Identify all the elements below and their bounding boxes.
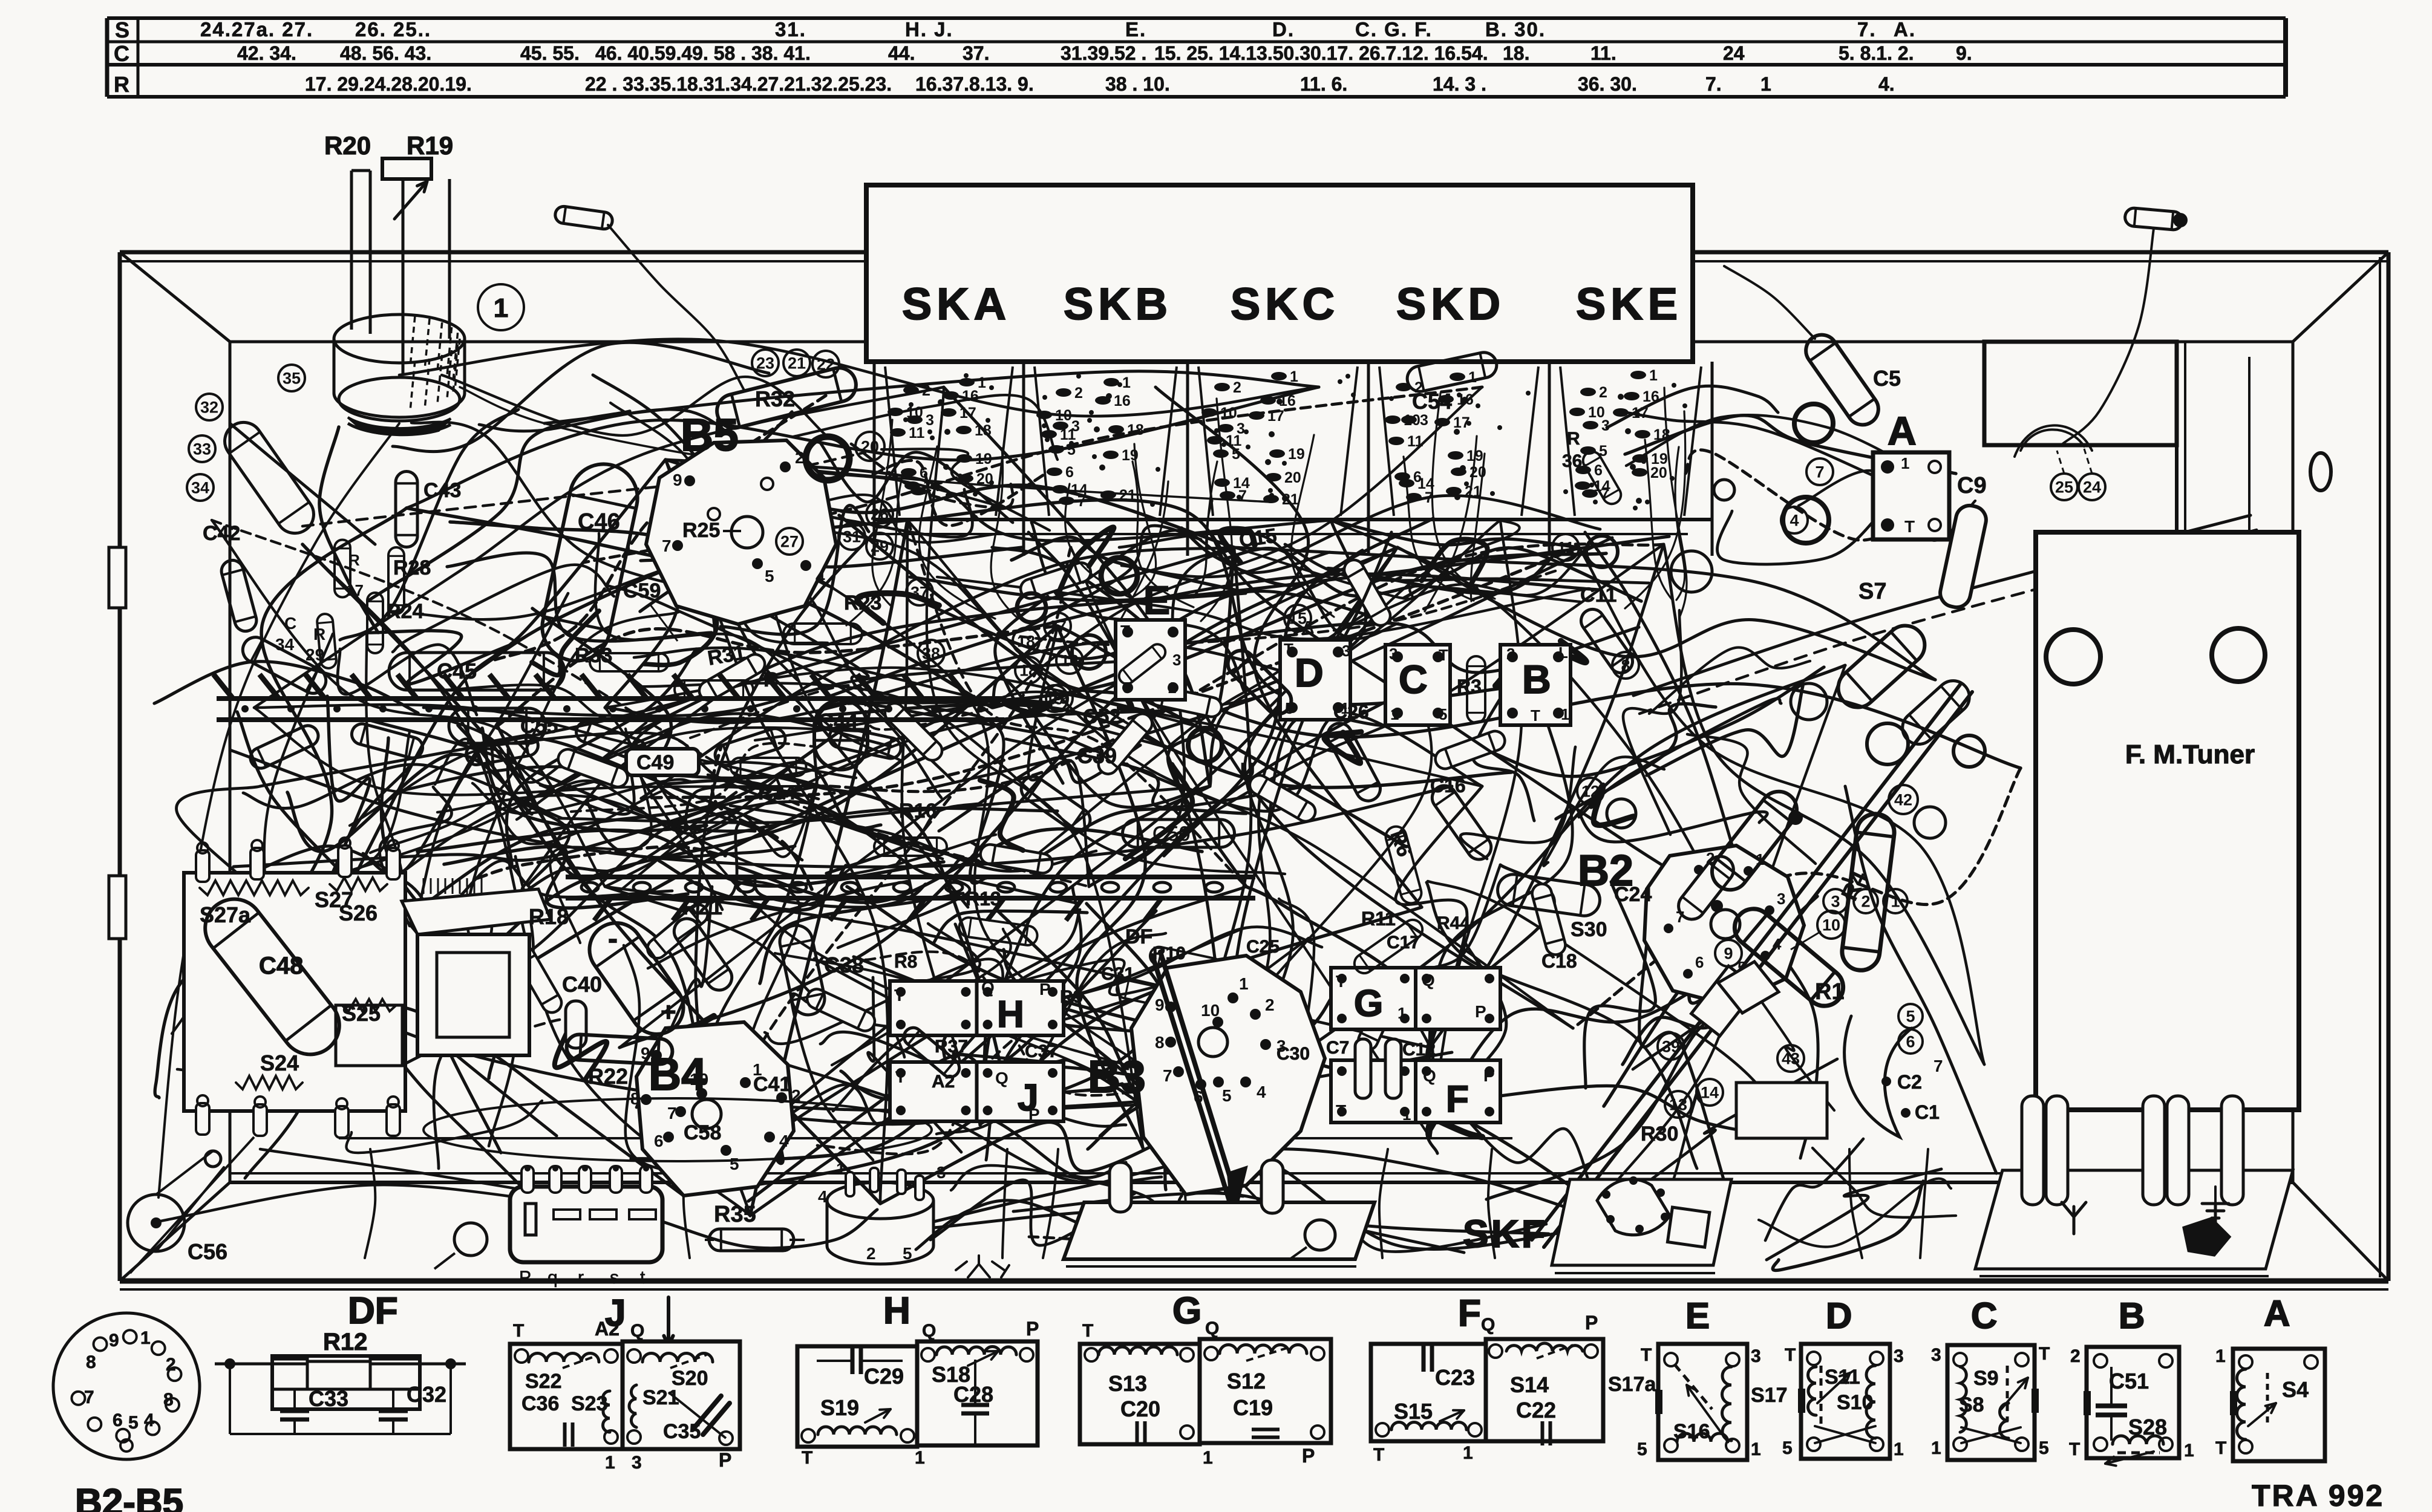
svg-text:6: 6 bbox=[1594, 462, 1603, 479]
svg-text:t: t bbox=[640, 1268, 646, 1288]
svg-text:44.: 44. bbox=[888, 42, 915, 64]
svg-text:B3: B3 bbox=[1088, 1051, 1146, 1102]
svg-text:C: C bbox=[114, 41, 129, 66]
svg-text:4: 4 bbox=[1790, 512, 1799, 530]
svg-text:DF: DF bbox=[348, 1290, 398, 1332]
svg-text:C1: C1 bbox=[1915, 1101, 1940, 1123]
svg-text:10: 10 bbox=[1822, 916, 1840, 934]
svg-text:C29: C29 bbox=[864, 1364, 904, 1389]
svg-text:R11: R11 bbox=[1361, 908, 1396, 930]
svg-text:2: 2 bbox=[1506, 645, 1515, 663]
svg-text:C41: C41 bbox=[753, 1073, 791, 1096]
svg-text:C48: C48 bbox=[259, 953, 303, 979]
svg-text:SKE: SKE bbox=[1576, 279, 1682, 329]
svg-text:18: 18 bbox=[1127, 422, 1144, 438]
svg-text:6: 6 bbox=[1065, 464, 1074, 481]
svg-text:C58: C58 bbox=[684, 1121, 721, 1144]
svg-text:17: 17 bbox=[346, 581, 364, 599]
svg-text:7: 7 bbox=[84, 1387, 94, 1407]
svg-text:10: 10 bbox=[1055, 407, 1072, 424]
svg-text:16: 16 bbox=[1643, 388, 1659, 405]
svg-text:R1: R1 bbox=[1815, 979, 1845, 1005]
svg-text:1: 1 bbox=[1290, 368, 1298, 385]
svg-text:2: 2 bbox=[2070, 1346, 2081, 1366]
svg-text:S15: S15 bbox=[1394, 1399, 1433, 1424]
svg-text:T: T bbox=[894, 986, 904, 1005]
svg-text:R12: R12 bbox=[323, 1329, 367, 1355]
svg-text:T: T bbox=[895, 1067, 906, 1086]
svg-text:T: T bbox=[1531, 706, 1540, 725]
svg-text:38: 38 bbox=[922, 645, 940, 663]
svg-text:C49: C49 bbox=[636, 751, 674, 774]
svg-text:SKA: SKA bbox=[902, 279, 1011, 329]
svg-text:2: 2 bbox=[922, 382, 930, 399]
svg-text:22 . 33.35.18.31.34.27.21.32.2: 22 . 33.35.18.31.34.27.21.32.25.23. bbox=[585, 73, 892, 95]
svg-text:C30: C30 bbox=[1276, 1044, 1310, 1064]
svg-text:C26: C26 bbox=[1333, 701, 1369, 723]
svg-text:43: 43 bbox=[1782, 1050, 1800, 1068]
svg-text:P: P bbox=[1585, 1312, 1598, 1334]
svg-text:C2: C2 bbox=[1897, 1071, 1922, 1093]
svg-text:C36: C36 bbox=[521, 1392, 559, 1415]
svg-text:6: 6 bbox=[1695, 953, 1704, 971]
svg-text:35: 35 bbox=[283, 370, 301, 388]
svg-text:11: 11 bbox=[1557, 539, 1575, 557]
svg-text:7: 7 bbox=[1934, 1057, 1943, 1075]
svg-text:S14: S14 bbox=[1510, 1372, 1549, 1397]
svg-text:D: D bbox=[1826, 1295, 1852, 1336]
svg-text:27: 27 bbox=[780, 533, 799, 551]
svg-text:C20: C20 bbox=[1120, 1396, 1160, 1421]
svg-text:1: 1 bbox=[836, 1159, 846, 1178]
svg-text:1: 1 bbox=[140, 1328, 151, 1348]
svg-text:T: T bbox=[1082, 1321, 1093, 1341]
svg-text:3: 3 bbox=[1420, 412, 1428, 429]
svg-text:6: 6 bbox=[1906, 1033, 1915, 1051]
svg-text:19: 19 bbox=[1045, 690, 1064, 708]
svg-text:C40: C40 bbox=[562, 972, 602, 997]
svg-text:45. 55.: 45. 55. bbox=[520, 42, 580, 64]
svg-text:5: 5 bbox=[1637, 1439, 1647, 1459]
svg-text:3: 3 bbox=[1894, 1346, 1904, 1366]
svg-text:1: 1 bbox=[1463, 1443, 1473, 1463]
svg-text:24: 24 bbox=[1723, 42, 1745, 64]
svg-text:H. J.: H. J. bbox=[905, 18, 953, 41]
svg-text:R44: R44 bbox=[1437, 913, 1470, 933]
svg-text:R: R bbox=[1567, 429, 1580, 449]
svg-text:3: 3 bbox=[1071, 418, 1080, 435]
svg-text:C23: C23 bbox=[1435, 1365, 1475, 1390]
svg-text:C25: C25 bbox=[1246, 937, 1280, 957]
svg-text:R28: R28 bbox=[393, 556, 431, 579]
svg-text:1: 1 bbox=[1751, 1439, 1761, 1459]
svg-text:1: 1 bbox=[1931, 1438, 1941, 1458]
svg-text:3: 3 bbox=[1389, 645, 1397, 663]
svg-text:R: R bbox=[348, 551, 360, 569]
svg-text:T: T bbox=[1641, 1345, 1652, 1365]
svg-text:5. 8.1. 2.: 5. 8.1. 2. bbox=[1839, 42, 1914, 64]
svg-text:14: 14 bbox=[1701, 1084, 1719, 1102]
svg-text:15. 25. 14.13.50.30.17. 26.7.1: 15. 25. 14.13.50.30.17. 26.7.12. 16.54. bbox=[1154, 42, 1488, 64]
svg-text:C11: C11 bbox=[1580, 584, 1617, 607]
svg-text:E.: E. bbox=[1125, 18, 1146, 41]
svg-text:5: 5 bbox=[1439, 705, 1447, 723]
svg-text:5: 5 bbox=[1782, 1438, 1793, 1458]
svg-text:9: 9 bbox=[1155, 996, 1165, 1014]
svg-text:2: 2 bbox=[1599, 384, 1607, 401]
svg-text:7: 7 bbox=[1815, 463, 1824, 481]
svg-text:1: 1 bbox=[2184, 1441, 2194, 1461]
svg-text:16.37.8.13. 9.: 16.37.8.13. 9. bbox=[915, 73, 1034, 95]
svg-text:2: 2 bbox=[166, 1355, 176, 1375]
svg-text:C: C bbox=[1971, 1295, 1997, 1336]
svg-text:11. 6.: 11. 6. bbox=[1300, 73, 1347, 95]
svg-text:1: 1 bbox=[1122, 374, 1131, 391]
svg-text:R20: R20 bbox=[324, 131, 371, 160]
svg-text:R16: R16 bbox=[899, 800, 937, 823]
svg-text:R34: R34 bbox=[758, 781, 796, 804]
svg-text:3: 3 bbox=[1342, 642, 1350, 660]
svg-text:19: 19 bbox=[975, 451, 992, 468]
svg-text:22: 22 bbox=[817, 356, 835, 374]
svg-text:18: 18 bbox=[1019, 662, 1038, 680]
svg-text:11: 11 bbox=[1226, 432, 1242, 449]
svg-text:E: E bbox=[1143, 578, 1170, 622]
svg-text:F: F bbox=[1458, 1292, 1481, 1334]
svg-text:8: 8 bbox=[1155, 1033, 1165, 1052]
svg-text:1: 1 bbox=[605, 1453, 615, 1473]
svg-text:C: C bbox=[1399, 657, 1428, 702]
svg-text:17: 17 bbox=[959, 405, 976, 422]
svg-text:B2-B5: B2-B5 bbox=[75, 1482, 183, 1512]
svg-text:T: T bbox=[2069, 1439, 2080, 1459]
svg-text:R13: R13 bbox=[966, 888, 1001, 910]
svg-text:5: 5 bbox=[2039, 1438, 2049, 1458]
svg-text:8: 8 bbox=[86, 1352, 96, 1372]
svg-text:6: 6 bbox=[654, 1132, 664, 1150]
svg-text:R24: R24 bbox=[386, 600, 423, 623]
svg-text:Q: Q bbox=[1205, 1318, 1219, 1338]
svg-text:4: 4 bbox=[818, 1187, 828, 1206]
svg-text:16: 16 bbox=[1114, 393, 1131, 409]
svg-text:5: 5 bbox=[1222, 1086, 1232, 1105]
svg-text:G: G bbox=[1172, 1290, 1201, 1332]
svg-text:T: T bbox=[1120, 622, 1130, 640]
svg-text:P: P bbox=[719, 1449, 731, 1471]
svg-text:15: 15 bbox=[1289, 610, 1307, 628]
svg-text:Q: Q bbox=[995, 1069, 1008, 1087]
svg-text:C19: C19 bbox=[1233, 1395, 1273, 1420]
svg-text:6: 6 bbox=[113, 1410, 123, 1430]
svg-text:C39: C39 bbox=[1077, 743, 1117, 768]
svg-text:C24: C24 bbox=[1614, 883, 1652, 906]
svg-text:G: G bbox=[1354, 983, 1383, 1025]
svg-text:17: 17 bbox=[1267, 408, 1284, 425]
svg-text:S22: S22 bbox=[525, 1370, 562, 1393]
svg-text:r: r bbox=[578, 1268, 584, 1288]
svg-text:23: 23 bbox=[756, 354, 774, 373]
svg-text:10: 10 bbox=[690, 1070, 708, 1089]
svg-text:C17: C17 bbox=[1387, 933, 1420, 953]
svg-text:11.: 11. bbox=[1590, 42, 1616, 64]
svg-text:18: 18 bbox=[975, 422, 992, 439]
svg-text:42. 34.: 42. 34. bbox=[237, 42, 296, 64]
svg-text:9: 9 bbox=[109, 1331, 119, 1351]
svg-text:3: 3 bbox=[1751, 1346, 1761, 1366]
svg-text:C45: C45 bbox=[437, 659, 477, 683]
svg-text:9: 9 bbox=[1724, 945, 1733, 963]
svg-text:33: 33 bbox=[193, 440, 211, 458]
svg-text:31: 31 bbox=[843, 528, 861, 546]
svg-text:T: T bbox=[802, 1448, 812, 1468]
svg-text:31.39.52 .: 31.39.52 . bbox=[1061, 42, 1146, 64]
svg-text:R32: R32 bbox=[755, 386, 795, 411]
svg-text:20: 20 bbox=[1284, 469, 1301, 486]
svg-text:5: 5 bbox=[1906, 1008, 1915, 1026]
svg-text:1: 1 bbox=[1894, 1439, 1904, 1459]
svg-text:H: H bbox=[997, 994, 1024, 1035]
svg-text:37.: 37. bbox=[963, 42, 989, 64]
svg-text:34: 34 bbox=[191, 479, 209, 497]
svg-text:C52: C52 bbox=[1083, 705, 1120, 728]
svg-text:3: 3 bbox=[937, 1163, 946, 1182]
svg-text:S9: S9 bbox=[1973, 1367, 1999, 1390]
svg-text:42: 42 bbox=[1894, 791, 1912, 809]
svg-text:C51: C51 bbox=[2109, 1369, 2149, 1393]
svg-text:3: 3 bbox=[632, 1453, 642, 1473]
svg-text:1: 1 bbox=[1203, 1448, 1213, 1468]
svg-text:R30: R30 bbox=[1641, 1123, 1678, 1145]
svg-text:A: A bbox=[1888, 408, 1917, 453]
svg-text:S17a: S17a bbox=[1608, 1373, 1656, 1396]
svg-text:7: 7 bbox=[1163, 1066, 1172, 1085]
svg-text:q: q bbox=[548, 1268, 558, 1288]
svg-text:14. 3 .: 14. 3 . bbox=[1433, 73, 1486, 95]
svg-text:R18: R18 bbox=[529, 904, 569, 929]
svg-text:C54: C54 bbox=[1412, 389, 1452, 414]
svg-text:SKC: SKC bbox=[1231, 279, 1339, 329]
svg-text:C12: C12 bbox=[1402, 1040, 1436, 1060]
svg-text:P: P bbox=[519, 1268, 531, 1288]
svg-text:C42: C42 bbox=[203, 522, 240, 545]
svg-text:D: D bbox=[1295, 650, 1324, 695]
svg-text:C44: C44 bbox=[818, 709, 858, 734]
svg-text:C59: C59 bbox=[623, 579, 661, 602]
svg-text:B. 30.: B. 30. bbox=[1485, 18, 1546, 41]
svg-text:5: 5 bbox=[730, 1155, 739, 1173]
svg-text:26: 26 bbox=[871, 506, 889, 524]
svg-text:5: 5 bbox=[765, 567, 774, 585]
svg-text:5: 5 bbox=[1123, 679, 1131, 697]
svg-text:1: 1 bbox=[1239, 974, 1249, 993]
svg-text:S19: S19 bbox=[820, 1395, 859, 1420]
svg-text:11: 11 bbox=[1407, 433, 1424, 450]
svg-text:H: H bbox=[883, 1290, 910, 1332]
svg-text:S17: S17 bbox=[1751, 1384, 1788, 1407]
svg-text:Q: Q bbox=[1481, 1315, 1495, 1335]
svg-text:1: 1 bbox=[1760, 73, 1771, 95]
svg-text:3: 3 bbox=[1172, 651, 1181, 669]
svg-text:4: 4 bbox=[1257, 1083, 1266, 1101]
svg-text:C43: C43 bbox=[423, 479, 461, 502]
svg-text:C9: C9 bbox=[1957, 473, 1987, 498]
svg-text:1: 1 bbox=[1468, 369, 1477, 386]
svg-text:16: 16 bbox=[962, 388, 979, 405]
svg-text:C56: C56 bbox=[188, 1239, 227, 1264]
svg-text:P: P bbox=[1475, 1002, 1486, 1021]
svg-text:U: U bbox=[1240, 759, 1255, 782]
svg-text:36. 30.: 36. 30. bbox=[1578, 73, 1637, 95]
svg-text:2: 2 bbox=[866, 1244, 876, 1263]
svg-text:T: T bbox=[1373, 1445, 1384, 1465]
svg-text:S20: S20 bbox=[672, 1367, 708, 1390]
svg-text:C38: C38 bbox=[824, 953, 864, 977]
svg-text:DF: DF bbox=[1125, 925, 1152, 948]
svg-text:SKD: SKD bbox=[1396, 279, 1505, 329]
svg-text:10: 10 bbox=[1588, 404, 1605, 421]
svg-text:C37: C37 bbox=[1025, 1041, 1058, 1061]
svg-text:+: + bbox=[661, 997, 676, 1027]
svg-text:R25: R25 bbox=[682, 519, 720, 542]
svg-text:3: 3 bbox=[1831, 893, 1840, 911]
svg-text:S26: S26 bbox=[339, 901, 378, 925]
svg-text:P: P bbox=[1039, 980, 1051, 999]
svg-text:P: P bbox=[1026, 1318, 1039, 1340]
svg-text:B5: B5 bbox=[681, 409, 739, 460]
svg-text:7.: 7. bbox=[1705, 73, 1722, 95]
svg-text:C18: C18 bbox=[1541, 950, 1577, 972]
svg-text:S25: S25 bbox=[342, 1001, 381, 1026]
svg-text:25: 25 bbox=[2055, 478, 2073, 497]
svg-text:4.: 4. bbox=[1878, 73, 1895, 95]
svg-text:C: C bbox=[284, 614, 296, 633]
svg-text:7.: 7. bbox=[1857, 18, 1877, 41]
svg-text:T: T bbox=[1439, 646, 1448, 664]
svg-text:18.: 18. bbox=[1503, 42, 1529, 64]
svg-text:S30: S30 bbox=[1571, 918, 1607, 941]
svg-text:3: 3 bbox=[1931, 1345, 1941, 1365]
svg-text:2: 2 bbox=[1074, 385, 1083, 402]
svg-text:1: 1 bbox=[1397, 1004, 1406, 1022]
svg-text:P: P bbox=[1302, 1445, 1315, 1467]
svg-text:R9: R9 bbox=[1060, 987, 1083, 1007]
svg-text:17: 17 bbox=[1048, 618, 1067, 636]
svg-text:1: 1 bbox=[1561, 705, 1569, 723]
svg-text:29: 29 bbox=[871, 538, 889, 556]
svg-text:A.: A. bbox=[1894, 18, 1916, 41]
svg-text:10: 10 bbox=[1220, 405, 1237, 422]
svg-text:R35: R35 bbox=[714, 1202, 756, 1227]
svg-text:21: 21 bbox=[788, 354, 806, 373]
svg-text:C22: C22 bbox=[1516, 1398, 1556, 1422]
svg-text:7: 7 bbox=[662, 536, 672, 555]
svg-text:1: 1 bbox=[2215, 1346, 2226, 1366]
svg-text:R3: R3 bbox=[1457, 676, 1482, 697]
svg-text:A2: A2 bbox=[595, 1318, 619, 1340]
svg-text:C5: C5 bbox=[1873, 366, 1901, 391]
svg-text:24.27a. 27.: 24.27a. 27. bbox=[200, 18, 313, 41]
svg-text:1: 1 bbox=[1168, 679, 1176, 697]
svg-text:C7: C7 bbox=[1326, 1038, 1349, 1058]
svg-text:D.: D. bbox=[1272, 18, 1295, 41]
svg-text:C50: C50 bbox=[1152, 823, 1190, 846]
svg-text:3: 3 bbox=[1777, 890, 1785, 908]
svg-text:R19: R19 bbox=[407, 131, 453, 160]
svg-text:S4: S4 bbox=[2282, 1377, 2309, 1402]
svg-text:2: 2 bbox=[1265, 996, 1275, 1014]
svg-text:1: 1 bbox=[494, 293, 508, 323]
svg-text:9: 9 bbox=[641, 1044, 650, 1063]
svg-text:48. 56. 43.: 48. 56. 43. bbox=[340, 42, 431, 64]
svg-text:9.: 9. bbox=[1956, 42, 1972, 64]
svg-text:P: P bbox=[1483, 1066, 1495, 1085]
svg-text:S24: S24 bbox=[260, 1051, 299, 1075]
svg-text:Q: Q bbox=[981, 978, 995, 997]
svg-text:T: T bbox=[2039, 1344, 2050, 1364]
svg-text:46. 40.59.49. 58 . 38. 41.: 46. 40.59.49. 58 . 38. 41. bbox=[595, 42, 811, 64]
svg-text:R23: R23 bbox=[844, 591, 881, 614]
svg-text:14: 14 bbox=[1233, 475, 1250, 492]
svg-text:11: 11 bbox=[909, 425, 925, 442]
svg-text:1: 1 bbox=[1901, 454, 1909, 472]
svg-text:s: s bbox=[610, 1268, 619, 1288]
svg-text:T: T bbox=[1336, 972, 1346, 991]
svg-text:1: 1 bbox=[1402, 1106, 1411, 1124]
svg-text:C. G. F.: C. G. F. bbox=[1355, 18, 1433, 41]
svg-text:5: 5 bbox=[128, 1413, 139, 1433]
svg-text:R22: R22 bbox=[588, 1064, 628, 1089]
svg-text:T: T bbox=[1284, 640, 1293, 658]
svg-text:1: 1 bbox=[1891, 893, 1900, 911]
svg-text:1: 1 bbox=[1649, 367, 1658, 384]
svg-text:17: 17 bbox=[1632, 405, 1649, 422]
svg-text:8: 8 bbox=[1621, 657, 1630, 675]
svg-text:S: S bbox=[115, 18, 129, 42]
svg-text:1: 1 bbox=[915, 1448, 925, 1468]
svg-text:A: A bbox=[2264, 1293, 2290, 1334]
svg-text:B: B bbox=[1522, 657, 1551, 702]
svg-text:4: 4 bbox=[144, 1410, 154, 1430]
svg-text:12: 12 bbox=[1581, 783, 1600, 801]
svg-text:37: 37 bbox=[910, 584, 929, 602]
svg-text:B: B bbox=[2119, 1295, 2145, 1336]
svg-text:19: 19 bbox=[1651, 451, 1668, 468]
svg-text:1: 1 bbox=[1390, 705, 1399, 723]
svg-text:4: 4 bbox=[816, 567, 825, 586]
svg-text:SKF: SKF bbox=[1463, 1212, 1548, 1256]
svg-text:2: 2 bbox=[1233, 379, 1241, 396]
svg-text:TRA 992: TRA 992 bbox=[2252, 1479, 2384, 1512]
svg-text:S11: S11 bbox=[1825, 1366, 1860, 1389]
svg-text:24: 24 bbox=[2083, 478, 2101, 497]
svg-text:20: 20 bbox=[861, 438, 879, 456]
svg-text:38 . 10.: 38 . 10. bbox=[1105, 73, 1170, 95]
svg-text:31.: 31. bbox=[775, 18, 806, 41]
svg-text:13: 13 bbox=[1669, 1096, 1687, 1114]
svg-text:T: T bbox=[1785, 1345, 1796, 1365]
svg-text:F: F bbox=[1446, 1078, 1469, 1120]
svg-text:R21: R21 bbox=[682, 894, 722, 919]
svg-text:10: 10 bbox=[1201, 1001, 1220, 1020]
svg-text:-: - bbox=[608, 923, 618, 955]
svg-text:5: 5 bbox=[903, 1244, 912, 1263]
svg-text:18: 18 bbox=[1017, 633, 1035, 651]
svg-text:S7: S7 bbox=[1858, 579, 1886, 604]
svg-text:17. 29.24.28.20.19.: 17. 29.24.28.20.19. bbox=[305, 73, 472, 95]
svg-text:T: T bbox=[2215, 1438, 2226, 1458]
svg-text:S13: S13 bbox=[1108, 1371, 1147, 1396]
svg-text:1: 1 bbox=[978, 374, 986, 391]
